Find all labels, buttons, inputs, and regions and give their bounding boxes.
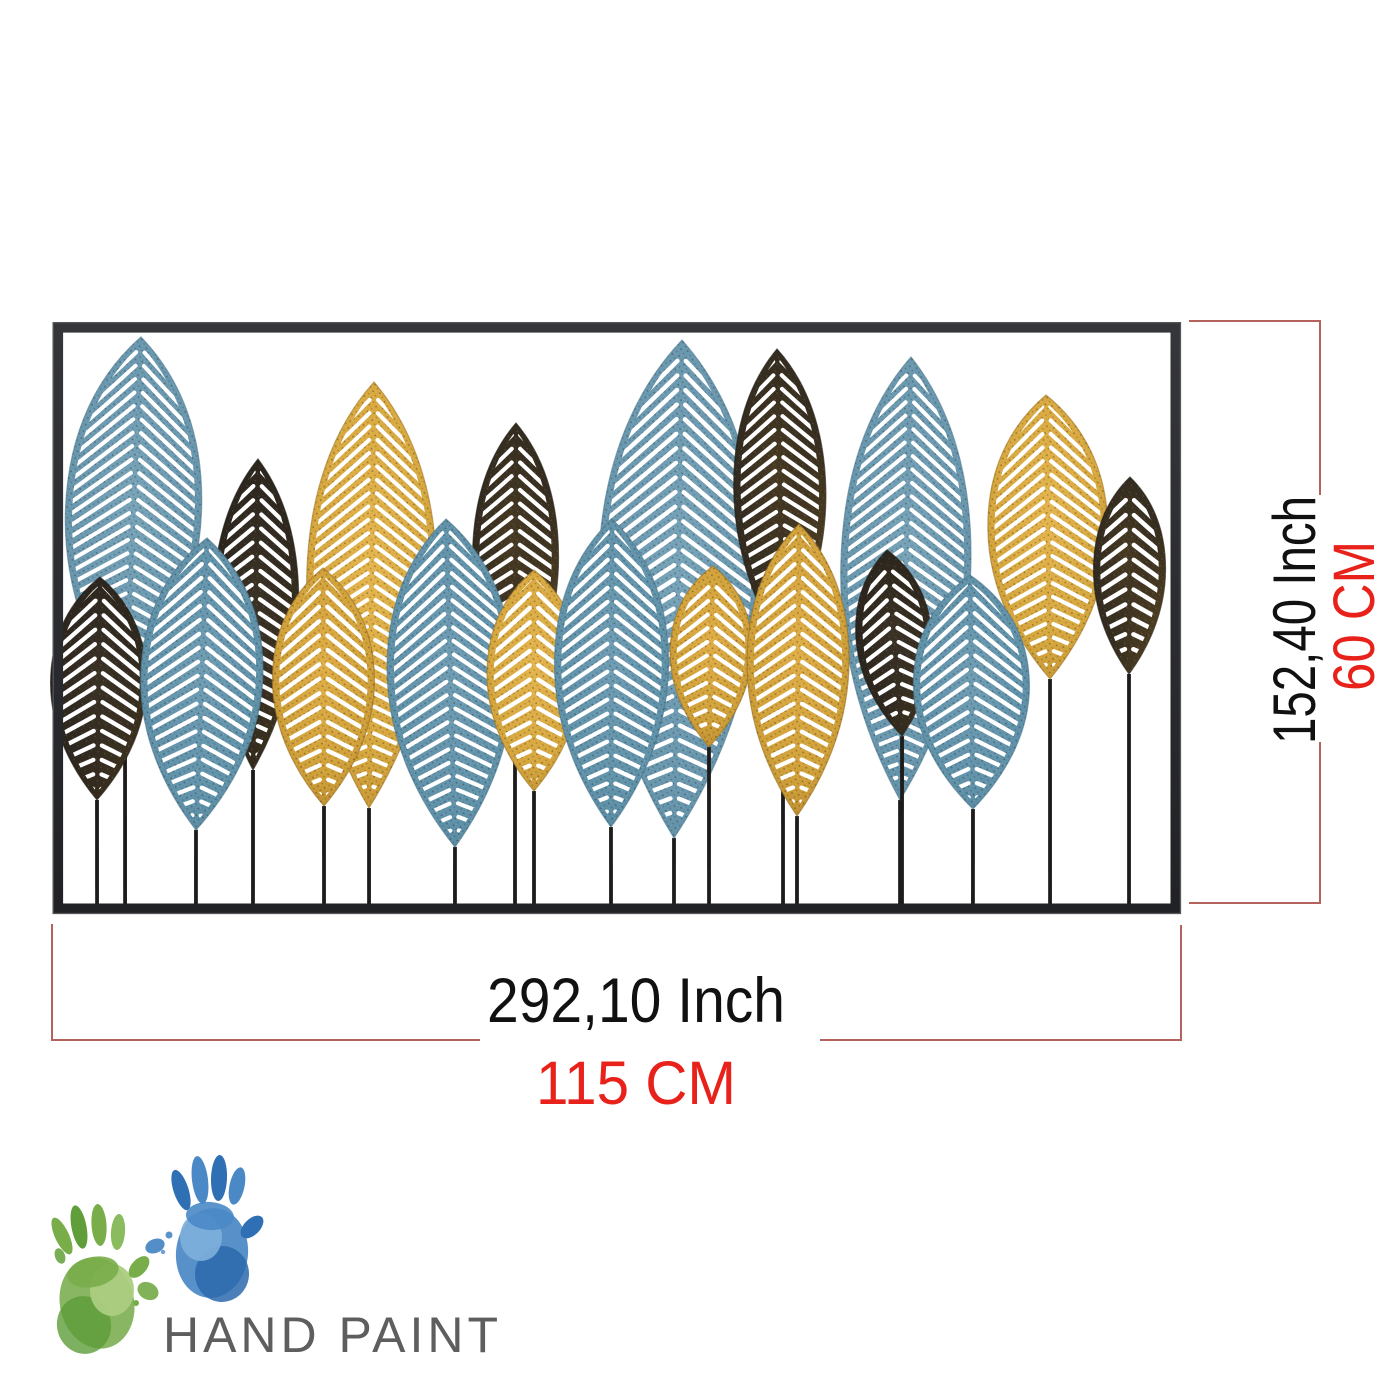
svg-text:152,40 Inch: 152,40 Inch [1261,496,1328,744]
svg-text:115 CM: 115 CM [536,1049,736,1117]
svg-text:60 CM: 60 CM [1322,541,1387,691]
svg-text:292,10 Inch: 292,10 Inch [487,966,785,1036]
svg-text:HAND PAINT: HAND PAINT [163,1307,498,1363]
